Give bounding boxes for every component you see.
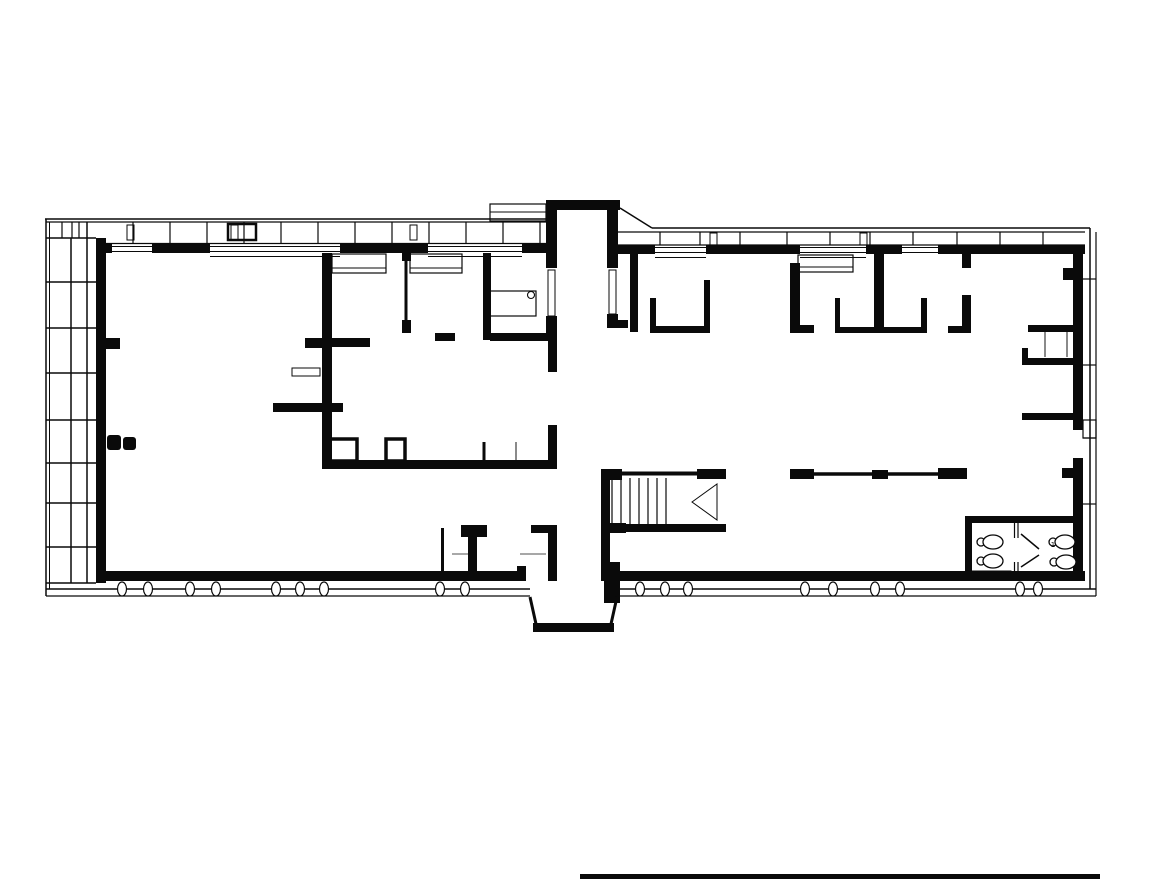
wall-segment	[604, 562, 620, 603]
facade-window-marker	[144, 582, 153, 596]
plan-line	[1021, 534, 1039, 549]
fixture-outline	[386, 439, 405, 461]
wall-segment	[790, 263, 800, 332]
wall-segment	[461, 525, 487, 537]
facade-window-marker	[461, 582, 470, 596]
fixture-outline	[609, 270, 616, 314]
wall-segment	[790, 325, 814, 333]
wall-segment	[490, 333, 555, 341]
facade-window-marker	[1016, 582, 1025, 596]
wall-segment	[123, 437, 136, 450]
facade-window-marker	[636, 582, 645, 596]
wall-segment	[706, 245, 800, 254]
fixture-outline	[329, 439, 357, 461]
wall-segment	[531, 525, 557, 533]
fixture-outline	[292, 368, 320, 376]
wall-segment	[273, 403, 343, 412]
fixture-outline	[710, 233, 717, 245]
floor-plan-svg: 1	[0, 0, 1168, 880]
wall-segment	[835, 298, 840, 332]
wall-segment	[607, 320, 628, 328]
facade-window-marker	[661, 582, 670, 596]
wall-segment	[340, 244, 428, 253]
fixture-outline	[231, 225, 238, 240]
walls-layer	[96, 200, 1100, 879]
wall-segment	[96, 571, 526, 581]
wall-segment	[548, 533, 557, 581]
wall-segment	[1022, 358, 1074, 365]
wall-segment	[874, 245, 884, 332]
wall-segment	[435, 333, 455, 341]
facade-window-marker	[1034, 582, 1043, 596]
toilet-bowl	[1055, 535, 1075, 549]
wall-segment	[546, 208, 557, 268]
toilet-symbol	[977, 554, 1003, 568]
wall-segment	[533, 623, 614, 632]
wall-segment	[1063, 268, 1083, 280]
facade-window-marker	[118, 582, 127, 596]
facade-window-marker	[829, 582, 838, 596]
facade-window-marker	[871, 582, 880, 596]
page: 1	[0, 0, 1168, 880]
wall-segment	[548, 332, 557, 372]
wall-segment	[962, 245, 971, 268]
facade-window-marker	[186, 582, 195, 596]
toilet-bowl	[1056, 555, 1076, 569]
wall-segment	[1062, 468, 1083, 478]
wall-segment	[965, 516, 1082, 523]
facade-window-marker	[296, 582, 305, 596]
stair-direction-triangle	[692, 484, 717, 520]
wall-segment	[322, 253, 332, 463]
plan-line	[620, 208, 652, 228]
wall-segment	[921, 298, 927, 333]
wall-segment	[483, 253, 491, 340]
facade-window-marker	[896, 582, 905, 596]
wall-segment	[332, 338, 370, 347]
wall-segment	[305, 338, 322, 348]
wall-segment	[522, 244, 548, 253]
plan-label: 1	[1051, 541, 1055, 549]
toilet-symbol	[1050, 555, 1076, 569]
wall-segment	[938, 245, 1085, 254]
wall-segment	[618, 245, 655, 254]
fixture-outline	[332, 254, 386, 273]
desk-stool	[528, 292, 535, 299]
fixture-outline	[488, 291, 536, 316]
wall-segment	[948, 326, 964, 333]
facade-window-marker	[436, 582, 445, 596]
wall-segment	[1028, 325, 1074, 332]
wall-segment	[152, 244, 210, 253]
wall-segment	[517, 566, 526, 581]
toilet-symbol	[977, 535, 1003, 549]
wall-segment	[468, 537, 477, 571]
wall-segment	[106, 338, 120, 349]
wall-segment	[604, 571, 1085, 581]
wall-segment	[96, 238, 106, 583]
labels-layer: 1	[1051, 541, 1055, 549]
facade-window-marker	[684, 582, 693, 596]
toilet-bowl	[983, 535, 1003, 549]
fixture-outline	[228, 224, 256, 240]
fixture-outline	[548, 270, 555, 316]
wall-segment	[107, 435, 121, 450]
wall-segment	[650, 326, 710, 333]
facade-window-marker	[801, 582, 810, 596]
wall-segment	[580, 874, 1100, 879]
toilet-bowl	[983, 554, 1003, 568]
wall-segment	[1022, 413, 1074, 420]
fixture-outline	[860, 233, 867, 245]
thin-lines-layer	[45, 208, 1096, 624]
wall-segment	[704, 280, 710, 333]
plan-line	[530, 597, 536, 624]
plan-line	[1021, 555, 1039, 567]
symbols-layer	[118, 292, 1077, 597]
wall-segment	[607, 208, 618, 268]
facade-window-marker	[320, 582, 329, 596]
wall-segment	[601, 524, 726, 532]
facade-window-marker	[212, 582, 221, 596]
fixture-outline	[410, 225, 417, 240]
facade-window-marker	[272, 582, 281, 596]
wall-segment	[630, 253, 638, 332]
